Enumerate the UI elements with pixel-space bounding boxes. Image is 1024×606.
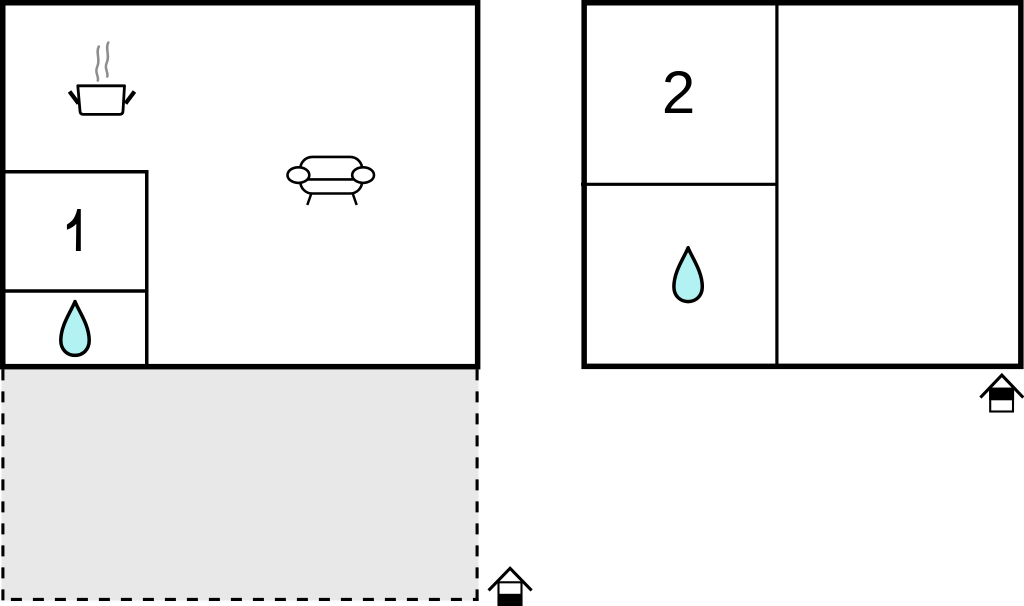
svg-text:2: 2 [662, 59, 695, 126]
